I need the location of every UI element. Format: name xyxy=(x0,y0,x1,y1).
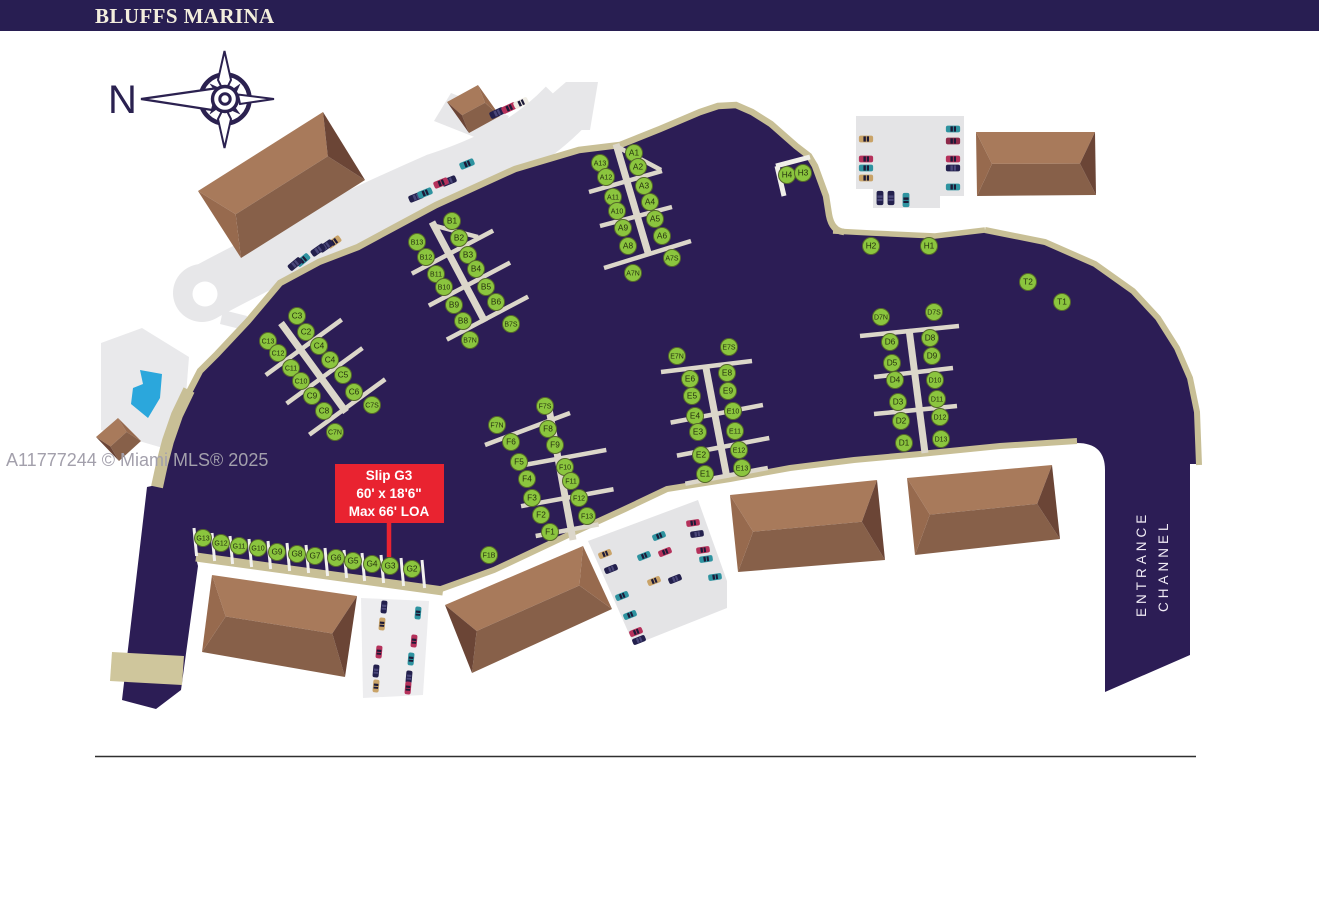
svg-text:D3: D3 xyxy=(893,397,904,407)
svg-text:B6: B6 xyxy=(491,297,502,307)
svg-text:A13: A13 xyxy=(594,161,607,168)
svg-text:H3: H3 xyxy=(798,168,809,178)
svg-text:A3: A3 xyxy=(639,181,650,191)
svg-text:E2: E2 xyxy=(696,450,707,460)
svg-text:F9: F9 xyxy=(550,440,560,450)
svg-text:C10: C10 xyxy=(295,379,308,386)
svg-text:Slip G3: Slip G3 xyxy=(366,468,413,483)
svg-text:E3: E3 xyxy=(693,427,704,437)
svg-text:F7N: F7N xyxy=(490,423,503,430)
svg-text:D13: D13 xyxy=(935,437,948,444)
svg-text:E7N: E7N xyxy=(670,354,684,361)
svg-text:E12: E12 xyxy=(733,448,746,455)
svg-text:C2: C2 xyxy=(301,327,312,337)
svg-text:ENTRANCE: ENTRANCE xyxy=(1134,511,1149,617)
svg-text:E9: E9 xyxy=(723,386,734,396)
svg-text:G8: G8 xyxy=(291,549,302,559)
svg-text:E4: E4 xyxy=(690,411,701,421)
svg-text:B2: B2 xyxy=(454,233,465,243)
svg-text:G12: G12 xyxy=(214,541,227,548)
svg-text:C7S: C7S xyxy=(365,403,379,410)
svg-text:A10: A10 xyxy=(611,209,624,216)
svg-text:C3: C3 xyxy=(292,311,303,321)
svg-text:D7N: D7N xyxy=(874,315,888,322)
svg-text:E8: E8 xyxy=(722,368,733,378)
svg-text:F5: F5 xyxy=(514,457,524,467)
svg-text:F12: F12 xyxy=(573,496,585,503)
svg-text:G2: G2 xyxy=(406,564,417,574)
svg-text:A4: A4 xyxy=(645,197,656,207)
svg-text:H4: H4 xyxy=(782,170,793,180)
svg-text:D12: D12 xyxy=(934,415,947,422)
svg-text:G9: G9 xyxy=(271,547,282,557)
svg-text:C7N: C7N xyxy=(328,430,342,437)
svg-text:F2: F2 xyxy=(536,510,546,520)
svg-text:G10: G10 xyxy=(251,546,264,553)
svg-text:B3: B3 xyxy=(463,250,474,260)
svg-text:B8: B8 xyxy=(458,316,469,326)
svg-text:F4: F4 xyxy=(522,474,532,484)
svg-text:D5: D5 xyxy=(887,358,898,368)
svg-text:E10: E10 xyxy=(727,409,740,416)
svg-text:F10: F10 xyxy=(559,465,571,472)
svg-text:G11: G11 xyxy=(233,544,246,551)
svg-text:B5: B5 xyxy=(481,282,492,292)
svg-text:Max 66' LOA: Max 66' LOA xyxy=(349,504,430,519)
svg-text:C12: C12 xyxy=(272,351,285,358)
svg-text:A11: A11 xyxy=(607,195,619,202)
svg-text:G7: G7 xyxy=(309,551,320,561)
svg-text:C4: C4 xyxy=(314,341,325,351)
svg-text:H1: H1 xyxy=(924,241,935,251)
svg-text:BLUFFS MARINA: BLUFFS MARINA xyxy=(95,4,275,28)
svg-text:A11777244 © Miami MLS® 2025: A11777244 © Miami MLS® 2025 xyxy=(6,450,268,470)
svg-text:A1: A1 xyxy=(629,148,640,158)
svg-text:B7S: B7S xyxy=(504,322,518,329)
svg-text:D2: D2 xyxy=(896,416,907,426)
svg-text:G6: G6 xyxy=(330,553,341,563)
svg-text:C5: C5 xyxy=(338,370,349,380)
svg-text:B1: B1 xyxy=(447,216,458,226)
svg-text:F8: F8 xyxy=(543,424,553,434)
svg-text:B4: B4 xyxy=(471,264,482,274)
svg-text:F6: F6 xyxy=(506,437,516,447)
svg-text:F3: F3 xyxy=(527,493,537,503)
svg-text:A12: A12 xyxy=(600,175,613,182)
svg-text:E11: E11 xyxy=(729,429,741,436)
svg-text:D10: D10 xyxy=(929,378,942,385)
svg-text:A9: A9 xyxy=(618,223,629,233)
svg-text:D9: D9 xyxy=(927,351,938,361)
svg-text:D6: D6 xyxy=(885,337,896,347)
svg-text:F1: F1 xyxy=(545,527,555,537)
svg-text:G4: G4 xyxy=(366,559,377,569)
svg-text:E1: E1 xyxy=(700,469,711,479)
svg-text:B9: B9 xyxy=(449,300,460,310)
svg-text:F1B: F1B xyxy=(483,553,496,560)
svg-text:C8: C8 xyxy=(319,406,330,416)
svg-text:E6: E6 xyxy=(685,374,696,384)
svg-text:A7S: A7S xyxy=(665,256,679,263)
svg-text:F11: F11 xyxy=(565,479,577,486)
svg-text:C6: C6 xyxy=(349,387,360,397)
svg-text:G5: G5 xyxy=(347,556,358,566)
svg-text:B11: B11 xyxy=(430,272,442,279)
svg-text:B7N: B7N xyxy=(463,338,477,345)
svg-text:C11: C11 xyxy=(285,366,297,373)
svg-text:60' x 18'6": 60' x 18'6" xyxy=(356,486,421,501)
svg-text:G3: G3 xyxy=(384,561,395,571)
svg-text:D7S: D7S xyxy=(927,310,941,317)
svg-text:A7N: A7N xyxy=(626,271,640,278)
svg-text:B10: B10 xyxy=(438,285,451,292)
svg-text:T1: T1 xyxy=(1057,297,1067,307)
svg-text:G13: G13 xyxy=(196,536,209,543)
svg-text:D8: D8 xyxy=(925,333,936,343)
svg-text:F7S: F7S xyxy=(539,404,552,411)
svg-text:A8: A8 xyxy=(623,241,634,251)
svg-text:A6: A6 xyxy=(657,231,668,241)
svg-text:E5: E5 xyxy=(687,391,698,401)
svg-text:A5: A5 xyxy=(650,214,661,224)
svg-text:C9: C9 xyxy=(307,391,318,401)
svg-text:E13: E13 xyxy=(736,466,749,473)
svg-text:D1: D1 xyxy=(899,438,910,448)
svg-text:B13: B13 xyxy=(411,240,424,247)
svg-text:C4: C4 xyxy=(325,355,336,365)
svg-text:B12: B12 xyxy=(420,255,433,262)
svg-text:A2: A2 xyxy=(633,162,644,172)
svg-text:F13: F13 xyxy=(581,514,593,521)
svg-text:C13: C13 xyxy=(262,339,275,346)
svg-text:CHANNEL: CHANNEL xyxy=(1156,519,1171,612)
svg-text:T2: T2 xyxy=(1023,277,1033,287)
svg-text:E7S: E7S xyxy=(722,345,736,352)
svg-text:D11: D11 xyxy=(931,397,943,404)
svg-text:D4: D4 xyxy=(890,375,901,385)
svg-text:N: N xyxy=(108,78,137,122)
svg-text:H2: H2 xyxy=(866,241,877,251)
